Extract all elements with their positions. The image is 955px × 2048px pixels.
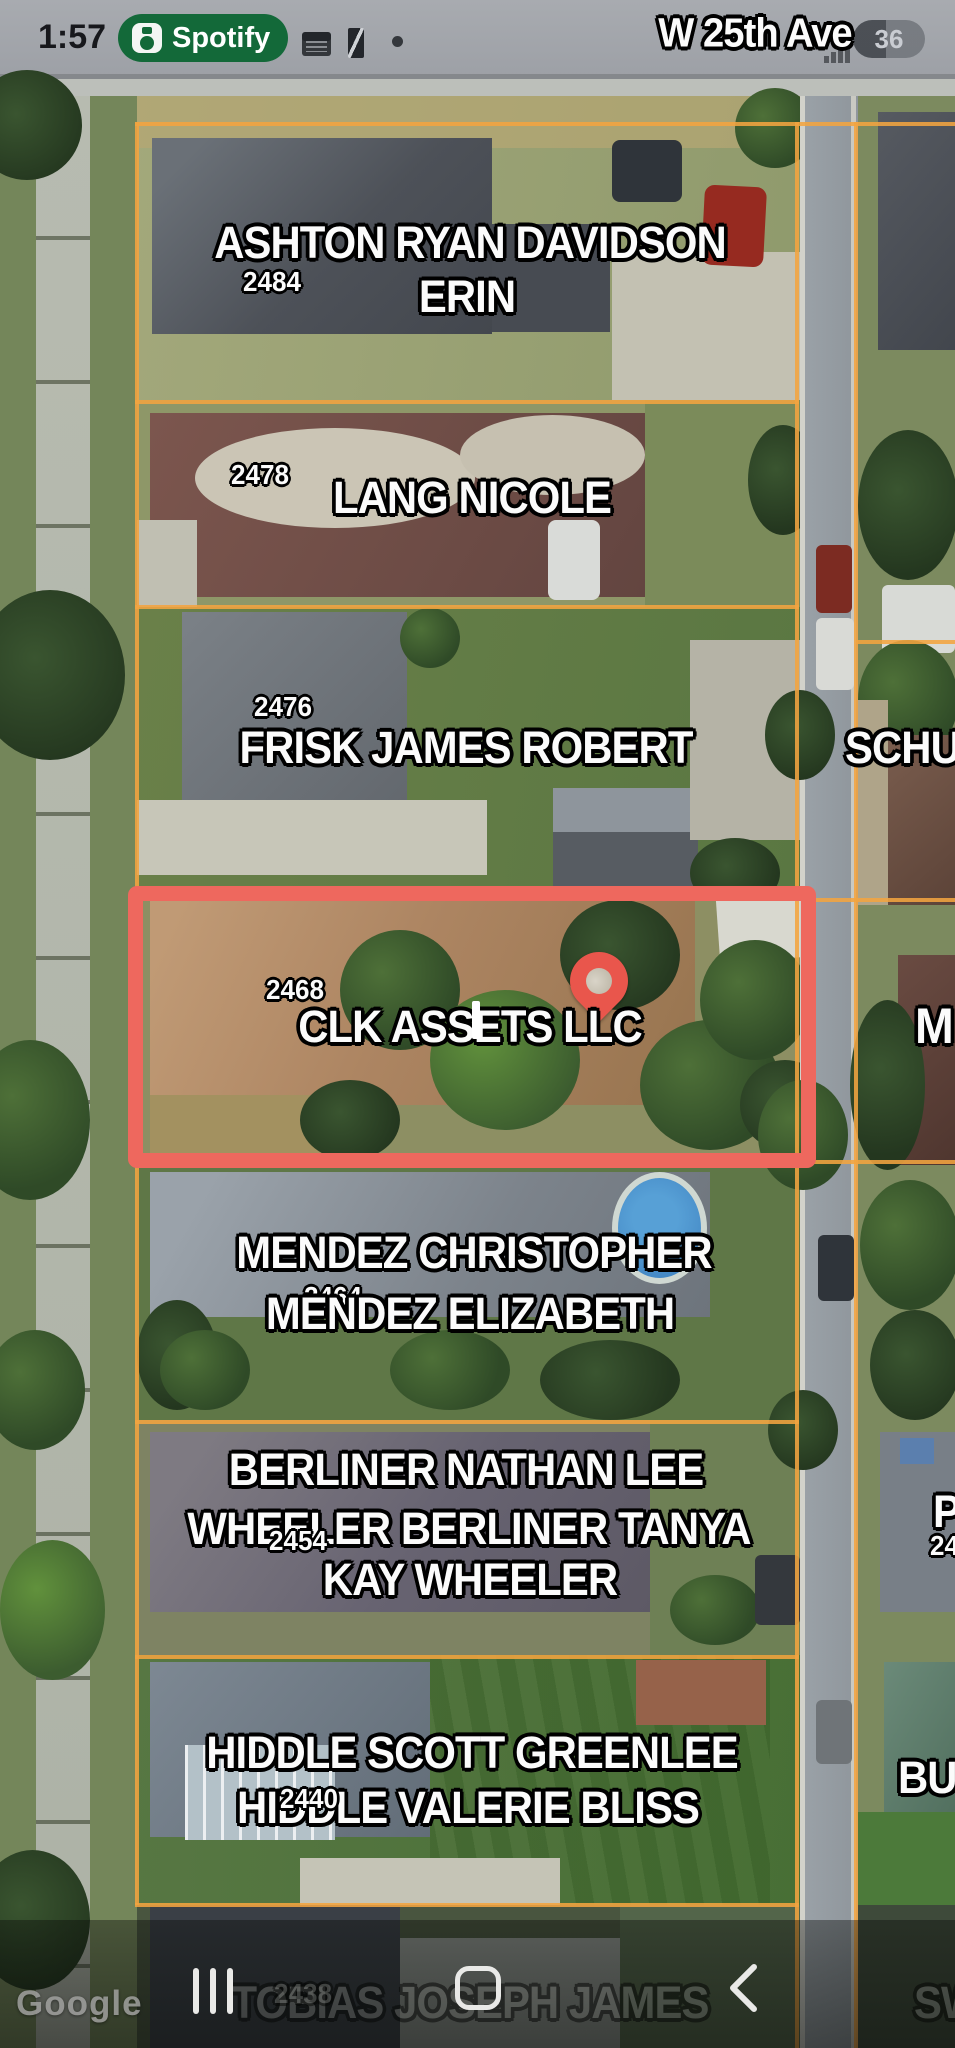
parcel-lang-address: 2478 [231,459,289,491]
parcel-mendez-line1: MENDEZ CHRISTOPHER [236,1227,711,1279]
edge-label-schu: SCHU [845,722,955,774]
street-name-label: W 25th Ave [658,10,851,57]
chevron-left-icon [724,1962,764,2014]
spotify-label: Spotify [172,22,270,55]
clock-time: 1:57 [38,18,106,57]
parcel-line-h5 [135,1903,799,1907]
parcel-clk-name: CLK ASSETS LLC [298,1001,641,1053]
parcel-berliner-address: 2454 [269,1525,327,1557]
back-button[interactable] [724,1962,764,2019]
parcel-frisk-name: FRISK JAMES ROBERT [240,722,693,774]
text-cursor [472,1001,480,1039]
parcel-line-right-h3 [812,1160,955,1164]
spotify-speaker-icon [132,23,162,53]
parcel-line-right-h2 [812,898,955,902]
parcel-berliner-line3: KAY WHEELER [323,1554,617,1606]
parcel-line-vertical-street-right [854,122,858,2048]
spotify-live-activity-pill[interactable]: Spotify [118,14,288,62]
parcel-lang-name: LANG NICOLE [333,472,611,524]
parcel-line-right-h1 [856,640,955,644]
recents-button[interactable] [193,1968,239,2014]
parcel-frisk-address: 2476 [254,691,312,723]
parcel-ashton-address: 2484 [243,266,301,298]
edge-label-m: M [915,997,954,1055]
home-button[interactable] [455,1966,501,2010]
edge-label-but: BUT [898,1752,955,1804]
google-watermark: Google [16,1984,143,2024]
parcel-line-h4 [135,1655,799,1659]
parcel-hiddle-line1: HIDDLE SCOTT GREENLEE [206,1727,738,1779]
parcel-line-h1 [135,400,799,404]
parcel-hiddle-address: 2440 [280,1783,338,1815]
edge-label-p-address: 24 [930,1530,955,1562]
phone-screen: ASHTON RYAN DAVIDSON 2484 ERIN 2478 LANG… [0,0,955,2048]
parcel-line-top [135,122,955,126]
nba-app-icon [348,28,364,58]
parcel-ashton-line1: ASHTON RYAN DAVIDSON [214,217,726,269]
battery-badge: 36 [853,20,925,58]
privacy-dot [392,36,403,47]
parcel-line-h2 [135,605,799,609]
parcel-berliner-line1: BERLINER NATHAN LEE [229,1444,703,1496]
parcel-mendez-line2: MENDEZ ELIZABETH [266,1288,674,1340]
parcel-ashton-line2: ERIN [419,271,515,323]
calendar-icon [302,32,331,56]
parcel-line-h3 [135,1420,799,1424]
